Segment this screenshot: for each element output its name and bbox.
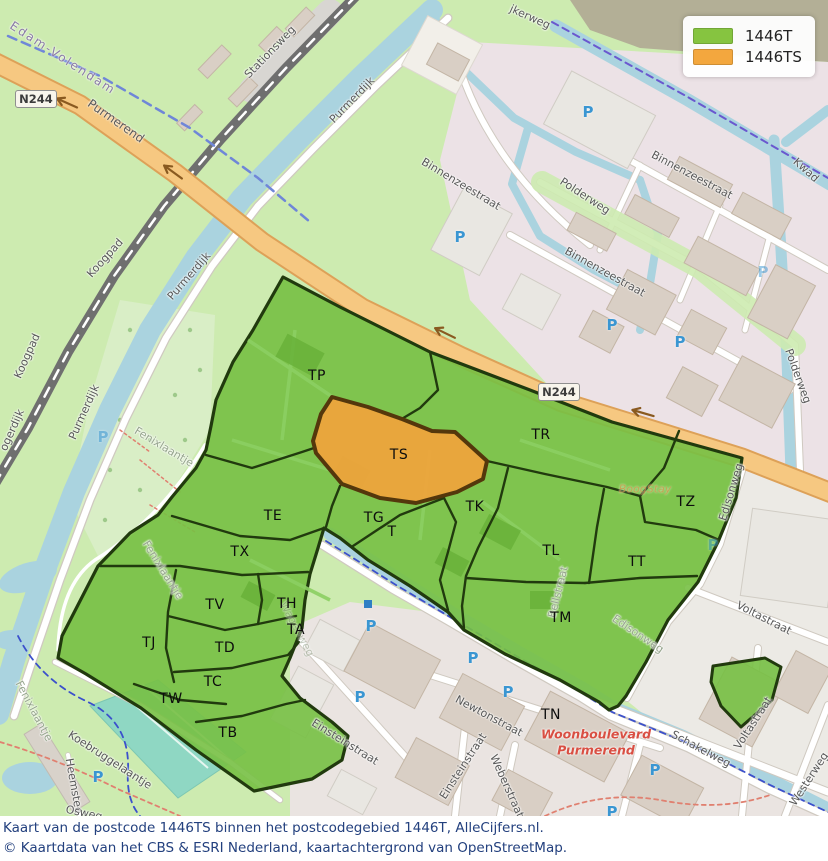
caption-line-2: © Kaartdata van het CBS & ESRI Nederland… bbox=[3, 838, 828, 858]
shop-icon bbox=[364, 600, 372, 608]
road-shield-n244: N244 bbox=[538, 383, 580, 401]
caption-line-1: Kaart van de postcode 1446TS binnen het … bbox=[3, 818, 828, 838]
map-base bbox=[0, 0, 828, 816]
legend-swatch-orange bbox=[693, 49, 733, 65]
legend-label: 1446T bbox=[745, 27, 792, 45]
legend-item-1446t: 1446T bbox=[693, 27, 805, 45]
road-shield-n244: N244 bbox=[15, 90, 57, 108]
caption: Kaart van de postcode 1446TS binnen het … bbox=[0, 816, 828, 861]
legend-item-1446ts: 1446TS bbox=[693, 48, 805, 66]
legend: 1446T 1446TS bbox=[683, 16, 815, 77]
legend-swatch-green bbox=[693, 28, 733, 44]
page: N244 N244 Edam-Volendam Purmerend Statio… bbox=[0, 0, 828, 861]
map-canvas: N244 N244 Edam-Volendam Purmerend Statio… bbox=[0, 0, 828, 816]
legend-label: 1446TS bbox=[745, 48, 802, 66]
